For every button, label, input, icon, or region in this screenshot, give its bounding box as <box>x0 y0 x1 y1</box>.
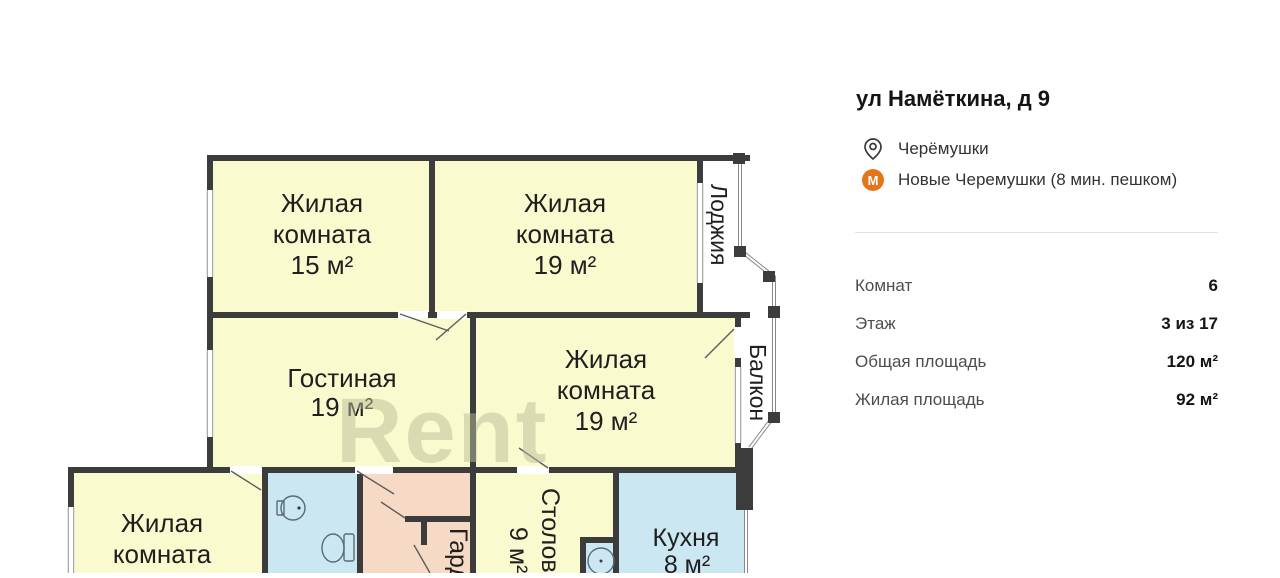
room-19a-area-label: 19 м² <box>534 250 597 280</box>
wardrobe-label: Гардероб <box>444 528 472 573</box>
specs-list: Комнат 6 Этаж 3 из 17 Общая площадь 120 … <box>855 277 1218 408</box>
divider <box>855 232 1218 233</box>
room-19b-label: комната <box>557 375 656 405</box>
spec-value: 120 м² <box>1167 353 1218 370</box>
spec-label: Жилая площадь <box>855 391 984 408</box>
spec-row-living-area: Жилая площадь 92 м² <box>855 391 1218 408</box>
listing-info-panel: ул Намёткина, д 9 Черёмушки М Новые Чере… <box>855 0 1218 573</box>
bathroom-area <box>265 470 360 573</box>
floor-plan: Жилая комната 15 м² Жилая комната 19 м² … <box>0 0 800 573</box>
dining-area-label: 9 м² <box>504 527 532 573</box>
spec-label: Этаж <box>855 315 896 332</box>
room-19b-label: Жилая <box>565 344 647 374</box>
kitchen-area-label: 8 м² <box>664 551 710 573</box>
spec-label: Комнат <box>855 277 912 294</box>
spec-value: 6 <box>1209 277 1218 294</box>
spec-value: 3 из 17 <box>1161 315 1218 332</box>
page-title: ул Намёткина, д 9 <box>856 86 1050 112</box>
room-15-area-label: 15 м² <box>291 250 354 280</box>
kitchen-label: Кухня <box>653 524 720 552</box>
metro-row: М Новые Черемушки (8 мин. пешком) <box>862 169 1177 191</box>
spec-row-floor: Этаж 3 из 17 <box>855 315 1218 332</box>
room-19a-label: комната <box>516 219 615 249</box>
spec-row-rooms: Комнат 6 <box>855 277 1218 294</box>
dining-label: Столовая <box>536 488 564 573</box>
district-label: Черёмушки <box>898 139 989 159</box>
metro-icon: М <box>862 169 884 191</box>
balcony-label: Балкон <box>745 344 771 421</box>
small-bath-area <box>583 540 616 573</box>
watermark: Rent <box>336 380 548 482</box>
room-19b-area-label: 19 м² <box>575 406 638 436</box>
spec-label: Общая площадь <box>855 353 986 370</box>
loggia-label: Лоджия <box>706 184 732 266</box>
room-bottom-left-label: Жилая <box>121 508 203 538</box>
district-row: Черёмушки <box>862 137 989 161</box>
spec-row-total-area: Общая площадь 120 м² <box>855 353 1218 370</box>
metro-label: Новые Черемушки (8 мин. пешком) <box>898 170 1177 190</box>
room-19a-label: Жилая <box>524 188 606 218</box>
room-bottom-left-label: комната <box>113 539 212 569</box>
room-15-label: комната <box>273 219 372 249</box>
room-15-label: Жилая <box>281 188 363 218</box>
spec-value: 92 м² <box>1176 391 1218 408</box>
location-pin-icon <box>862 137 884 161</box>
